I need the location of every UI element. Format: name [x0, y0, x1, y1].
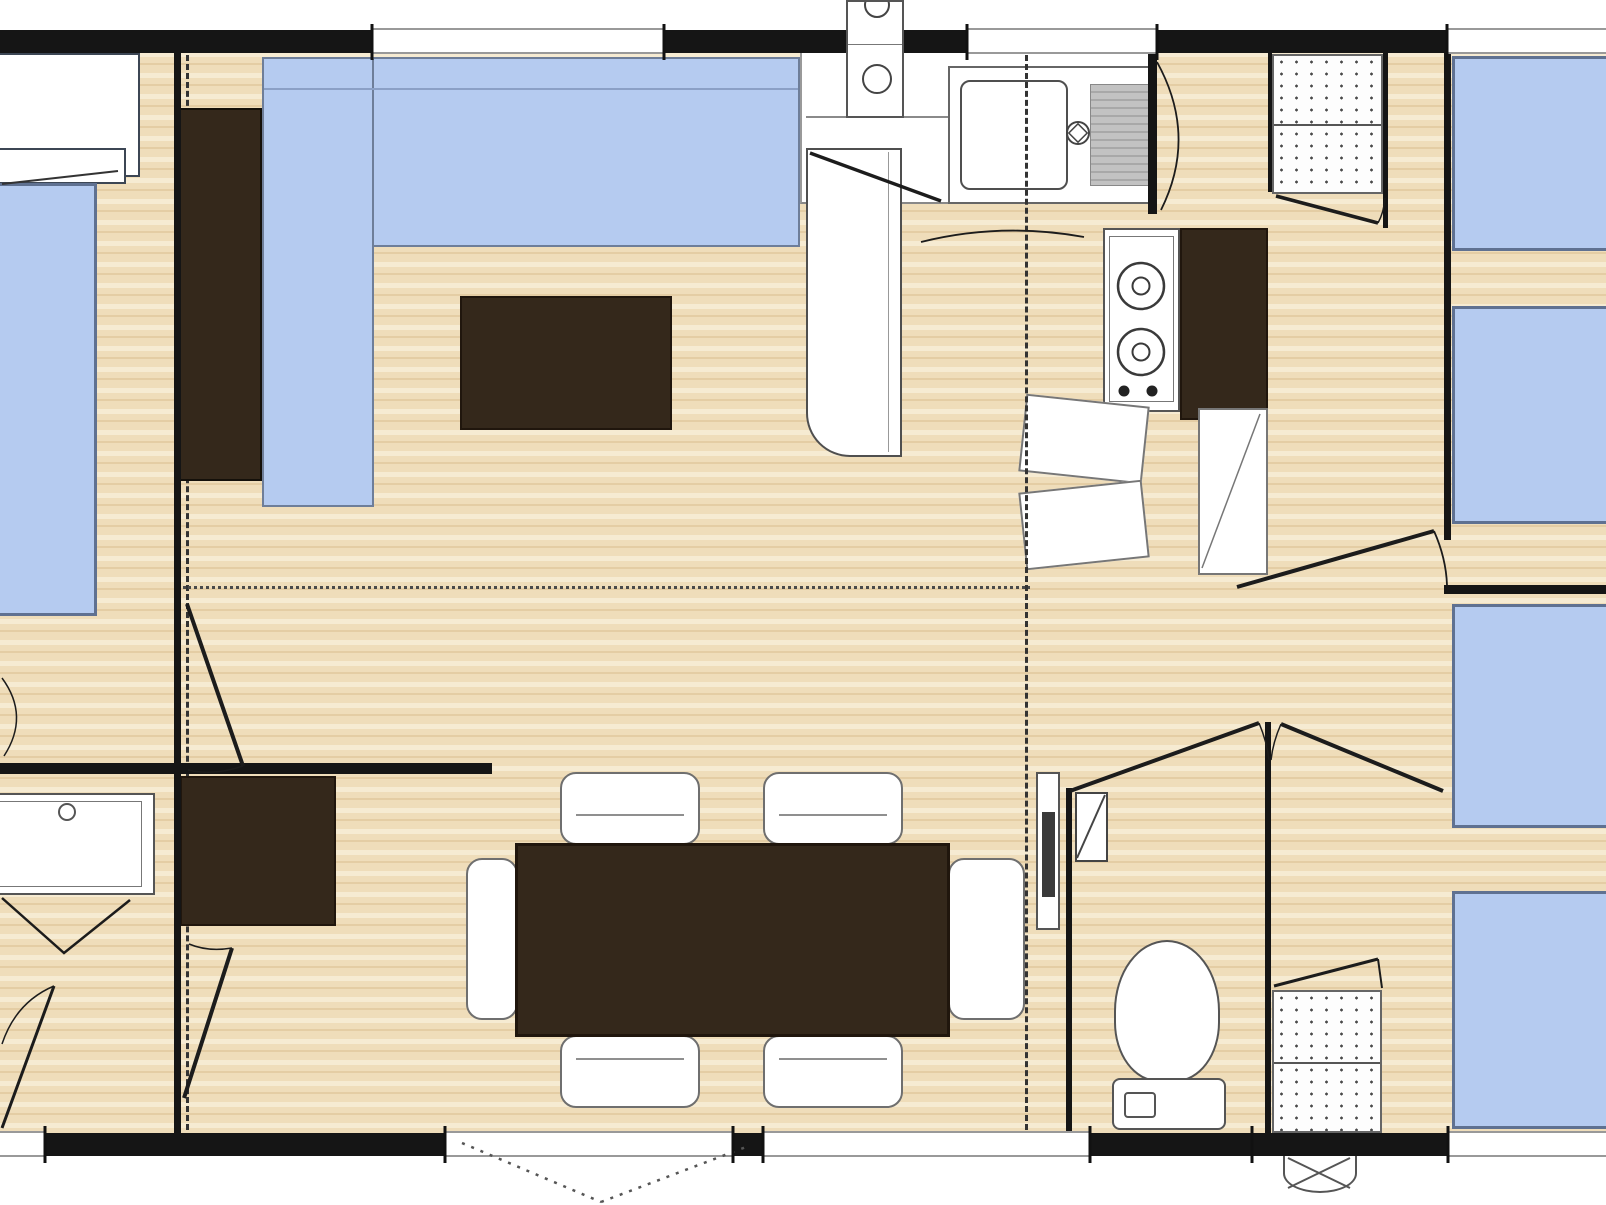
sofa-arm [262, 57, 374, 507]
chair-cushion-line [576, 1058, 685, 1060]
boiler-pipe-top [864, 0, 890, 18]
sofa-seat [372, 57, 800, 247]
single-bed-1 [1452, 56, 1606, 251]
hanging-wardrobe-top-right [1272, 54, 1383, 194]
boiler-column [846, 0, 904, 118]
outer-wall-bottom-3 [1090, 1133, 1448, 1156]
sink-drainer [1090, 84, 1153, 186]
toilet-flush-button [1124, 1092, 1156, 1118]
dining-chair-top-2 [763, 772, 903, 845]
window-bottom-2 [445, 1131, 733, 1157]
exterior-vent [1283, 1156, 1357, 1193]
outer-wall-bottom-1 [45, 1133, 445, 1156]
outer-wall-bottom-2 [733, 1133, 763, 1156]
living-dining-dotted-separator [183, 586, 1030, 589]
bedroom-wardrobe [178, 108, 262, 481]
hanging-wardrobe-toilet [1272, 990, 1382, 1133]
wall-toilet-left [1066, 788, 1072, 1133]
dining-table [515, 843, 950, 1037]
double-bed [0, 183, 97, 616]
bathroom-cabinet [180, 776, 336, 926]
window-bottom-4 [1448, 1131, 1606, 1157]
chair-cushion-line [779, 1058, 888, 1060]
window-top-3 [1447, 28, 1606, 54]
wardrobe-rail [1274, 124, 1381, 126]
outer-wall-top-3 [902, 30, 967, 53]
radiator-core [1042, 812, 1055, 897]
window-bottom-3 [763, 1131, 1090, 1157]
window-top-2 [967, 28, 1157, 54]
corner-shelf [1075, 792, 1108, 862]
kitchen-sink-basin [960, 80, 1068, 190]
vanity-drain [58, 803, 76, 821]
gas-hob-inner [1109, 236, 1174, 402]
outer-wall-top-1 [0, 30, 372, 53]
single-bed-4 [1452, 891, 1606, 1129]
base-cabinet-corner [1198, 408, 1268, 575]
dining-chair-right [948, 858, 1025, 1020]
wall-toilet-right [1265, 722, 1271, 1133]
boiler-line [848, 44, 902, 45]
wall-kitchen-right [1148, 52, 1157, 214]
single-bed-2 [1452, 306, 1606, 524]
wardrobe-rail [1274, 1062, 1380, 1064]
bed-sheet-fold [0, 148, 126, 184]
coffee-table [460, 296, 672, 430]
fridge-inner-line [888, 152, 889, 452]
toilet-bowl [1114, 940, 1220, 1082]
base-cabinet-door-1 [1018, 394, 1149, 485]
outer-wall-top-4 [1157, 30, 1447, 53]
section-dashed-line-center [1025, 55, 1028, 1130]
sofa-backrest-line [264, 88, 798, 90]
dining-chair-bottom-1 [560, 1035, 700, 1108]
outer-wall-top-2 [664, 30, 848, 53]
dining-chair-left [466, 858, 518, 1020]
chair-cushion-line [576, 814, 685, 816]
kitchen-tall-cabinet [1180, 228, 1268, 420]
floor-plan [0, 0, 1606, 1205]
wall-wardrobe-left [1268, 52, 1272, 192]
wall-right-bedroom-horizontal [1444, 585, 1606, 594]
wall-bathroom-top [0, 763, 492, 774]
window-top-1 [372, 28, 664, 54]
wall-right-bedroom-vertical [1444, 52, 1451, 540]
boiler-pipe [862, 64, 892, 94]
window-bottom-1 [0, 1131, 45, 1157]
chair-cushion-line [779, 814, 888, 816]
wall-left-bedroom [174, 52, 181, 1133]
base-cabinet-door-2 [1018, 480, 1149, 571]
single-bed-3 [1452, 604, 1606, 828]
dining-chair-top-1 [560, 772, 700, 845]
wall-wardrobe-right [1383, 52, 1388, 228]
dining-chair-bottom-2 [763, 1035, 903, 1108]
